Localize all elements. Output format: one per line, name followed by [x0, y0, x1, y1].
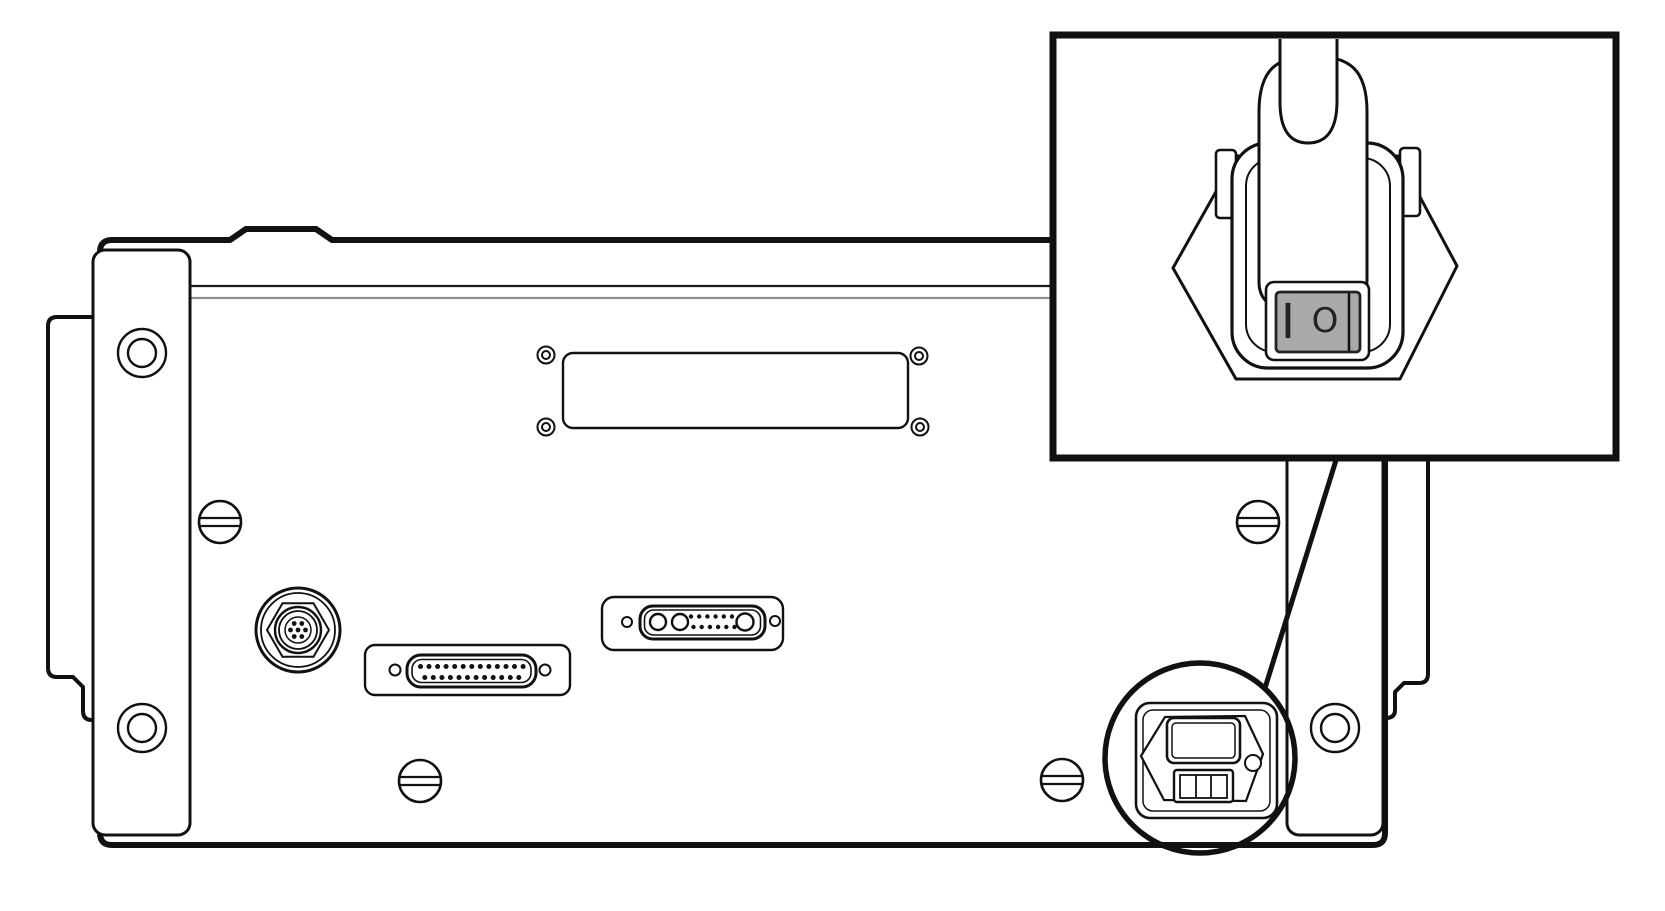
inset-view: I O: [1053, 35, 1616, 458]
diagram-canvas: I O: [0, 0, 1665, 911]
slotted-screw-bottom-right: [1041, 759, 1083, 801]
db25-connector: [365, 645, 570, 695]
power-off-symbol: O: [1312, 301, 1339, 341]
din-connector: [256, 588, 340, 672]
power-on-symbol: I: [1281, 294, 1295, 350]
blank-cover-plate: [538, 347, 929, 436]
power-entry-module: [1136, 703, 1277, 818]
slotted-screw-top-right: [1237, 501, 1279, 543]
inset-rocker-switch: I O: [1266, 282, 1369, 360]
slotted-screw-bottom-left: [399, 760, 441, 802]
diagram-page: I O: [0, 0, 1665, 911]
power-cord: [1280, 36, 1337, 143]
combo-connector: [602, 597, 783, 650]
module-side-button: [1245, 755, 1261, 771]
module-rocker-switch: [1174, 770, 1233, 802]
left-bracket: [93, 250, 190, 835]
inlet-opening: [1167, 718, 1240, 763]
slotted-screw-top-left: [199, 501, 241, 543]
